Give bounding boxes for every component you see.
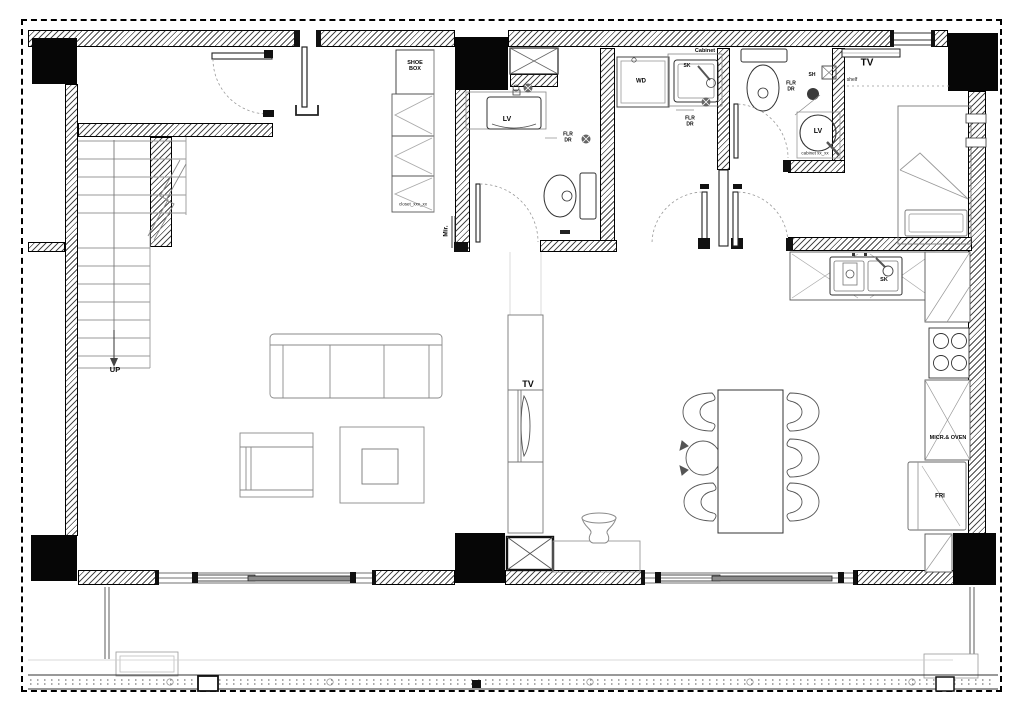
label-shoe-box: SHOE BOX <box>402 60 428 72</box>
label-sh-bath2: SH <box>809 73 816 79</box>
bath2-door <box>734 104 791 172</box>
label-fri: FRI <box>935 494 945 501</box>
label-lv-bath1: LV <box>503 116 511 124</box>
label-sk-laundry: SK <box>684 64 691 70</box>
duct-shaft-top <box>510 48 558 74</box>
label-lv-bath2: LV <box>814 128 822 136</box>
laundry-door <box>652 192 707 246</box>
floor-plan-canvas: SHOE BOX closet_xxx_xx Mir. LV FLR DR WD… <box>0 0 1024 715</box>
bedroom-window <box>890 30 935 47</box>
bath2-floor-drain <box>807 88 819 100</box>
tv-media-column <box>508 252 543 533</box>
label-flr-dr-bath2: FLR DR <box>784 81 799 92</box>
double-door-stub <box>698 170 788 249</box>
sliding-door-left <box>155 570 376 585</box>
closet-shoe-cabinet <box>392 50 434 212</box>
label-tv-living: TV <box>522 379 534 389</box>
label-closet: closet_xxx_xx <box>399 201 427 206</box>
label-tv-bedroom: TV <box>861 57 874 68</box>
label-sk-kitchen: SK <box>880 277 888 283</box>
dining-table <box>718 390 783 533</box>
bath1-floor-drains <box>524 84 591 144</box>
stool <box>582 513 616 543</box>
label-cabinet-laundry: Cabinet <box>695 48 715 54</box>
bath2-toilet <box>741 49 787 111</box>
coffee-table <box>340 427 424 503</box>
balcony-planter-right <box>924 654 978 678</box>
label-shelf-bedroom: shelf <box>847 78 858 84</box>
bedroom-bed <box>898 106 971 244</box>
lounge-chair <box>240 433 313 497</box>
label-flr-dr-bath1: FLR DR <box>561 132 576 143</box>
label-wd: WD <box>636 79 646 86</box>
balcony-railing <box>28 675 998 691</box>
label-up: UP <box>110 366 120 374</box>
duct-shaft-bottom <box>507 537 553 570</box>
bedroom-tv-unit <box>842 49 952 86</box>
stairs <box>78 137 186 368</box>
label-cabinet-bath2: cabinet xx_xx <box>801 150 828 155</box>
balcony <box>28 587 978 678</box>
laundry-floor-drain <box>676 98 711 111</box>
railing-post-box-right <box>936 677 954 691</box>
kitchen-wall-jamb <box>786 238 793 251</box>
balcony-planter-left <box>116 652 178 676</box>
sliding-door-right <box>641 570 857 585</box>
label-mirror: Mir. <box>442 225 449 236</box>
railing-anchor <box>472 680 481 688</box>
label-flr-dr-laundry: FLR DR <box>683 116 698 127</box>
console-table <box>553 541 640 572</box>
bath1-toilet <box>544 173 596 234</box>
label-micr-oven: MICR.& OVEN <box>930 435 967 441</box>
bath1-door <box>454 184 538 252</box>
entry-door <box>212 50 274 117</box>
laundry-sink <box>668 54 722 106</box>
fixtures-layer <box>0 0 1024 715</box>
sofa <box>270 334 442 398</box>
railing-post-box-left <box>198 676 218 691</box>
kitchen-sink <box>830 253 902 295</box>
right-wall-recesses <box>966 114 986 147</box>
entry-door-leaf <box>294 30 321 115</box>
